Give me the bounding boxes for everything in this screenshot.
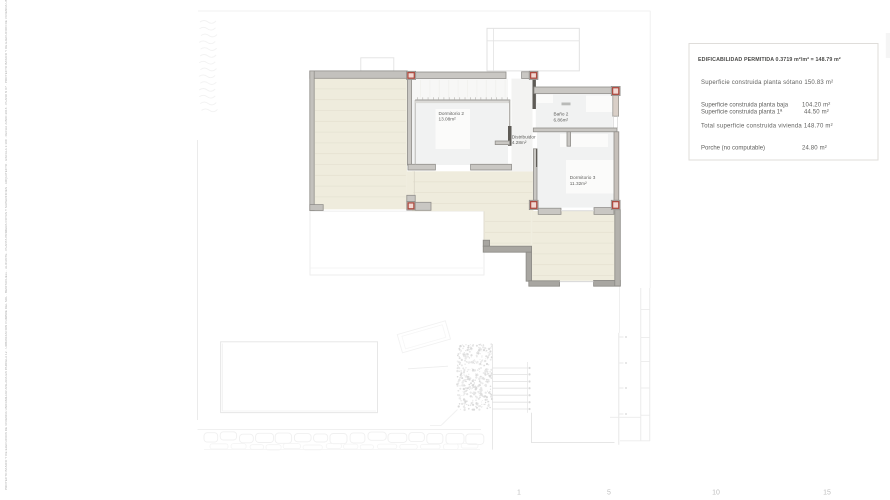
svg-text:6.86m²: 6.86m² bbox=[554, 117, 569, 122]
svg-text:Dormitorio 2: Dormitorio 2 bbox=[439, 111, 465, 116]
svg-text:PROYECTO BASICO Y DE EJECUCION: PROYECTO BASICO Y DE EJECUCION DE VIVIEN… bbox=[4, 0, 8, 490]
svg-text:Total superficie construida vi: Total superficie construida vivienda 148… bbox=[701, 124, 833, 130]
svg-text:11.32m²: 11.32m² bbox=[570, 181, 587, 186]
svg-text:Superficie construida planta b: Superficie construida planta baja bbox=[701, 102, 789, 108]
svg-text:1: 1 bbox=[517, 490, 521, 497]
svg-text:Distribuidor: Distribuidor bbox=[512, 134, 536, 139]
svg-text:4.28m²: 4.28m² bbox=[512, 140, 527, 145]
svg-text:EDIFICABILIDAD PERMITIDA 0.371: EDIFICABILIDAD PERMITIDA 0.3719 m²/m² = … bbox=[698, 57, 841, 63]
svg-text:13.08m²: 13.08m² bbox=[439, 117, 457, 122]
svg-text:Baño 2: Baño 2 bbox=[554, 112, 569, 117]
svg-text:104.20 m²: 104.20 m² bbox=[802, 102, 830, 108]
svg-text:15: 15 bbox=[823, 490, 831, 497]
svg-text:Superficie construida planta 1: Superficie construida planta 1ª bbox=[701, 109, 783, 116]
svg-text:10: 10 bbox=[712, 490, 720, 497]
svg-text:Superficie construida planta s: Superficie construida planta sótano 150.… bbox=[701, 80, 833, 86]
svg-text:44.50 m²: 44.50 m² bbox=[804, 110, 829, 116]
svg-text:5: 5 bbox=[607, 490, 611, 497]
svg-text:Dormitorio 3: Dormitorio 3 bbox=[570, 175, 596, 180]
svg-text:24.80 m²: 24.80 m² bbox=[802, 146, 827, 152]
svg-text:Porche (no computable): Porche (no computable) bbox=[701, 146, 765, 152]
